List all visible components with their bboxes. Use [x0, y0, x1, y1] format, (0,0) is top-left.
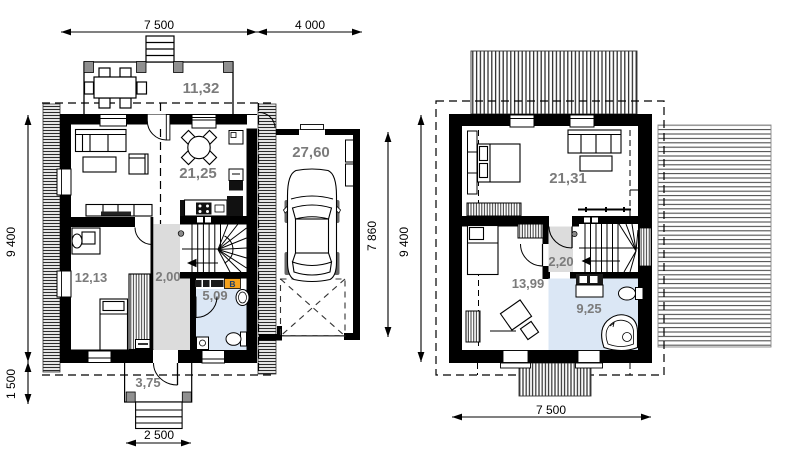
svg-text:21,25: 21,25	[179, 165, 217, 182]
svg-text:2,20: 2,20	[548, 254, 573, 269]
svg-text:7 500: 7 500	[144, 18, 174, 32]
svg-text:13,99: 13,99	[512, 276, 545, 291]
svg-text:1 500: 1 500	[4, 369, 18, 399]
svg-text:21,31: 21,31	[549, 170, 587, 187]
svg-text:3,75: 3,75	[135, 375, 160, 390]
svg-text:4 000: 4 000	[295, 18, 325, 32]
svg-text:27,60: 27,60	[292, 144, 330, 161]
svg-text:7 860: 7 860	[365, 221, 379, 251]
svg-text:2 500: 2 500	[144, 428, 174, 442]
svg-text:2,00: 2,00	[155, 269, 180, 284]
svg-text:7 500: 7 500	[536, 403, 566, 417]
svg-text:9,25: 9,25	[576, 301, 601, 316]
svg-text:11,32: 11,32	[183, 80, 220, 97]
svg-text:5,09: 5,09	[202, 288, 227, 303]
svg-text:9 400: 9 400	[4, 227, 18, 257]
svg-text:B: B	[229, 279, 235, 289]
svg-text:12,13: 12,13	[75, 270, 108, 285]
svg-text:9 400: 9 400	[397, 227, 411, 257]
